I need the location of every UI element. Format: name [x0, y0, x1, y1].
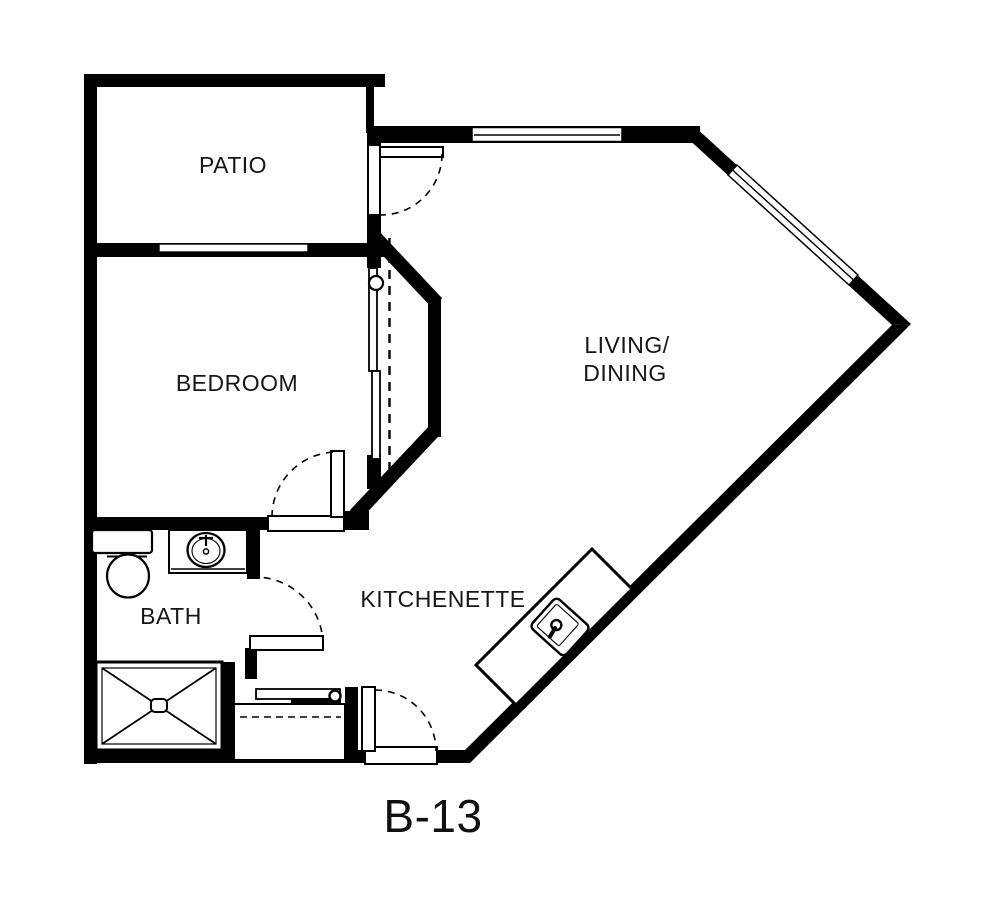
wall-bay-bottom-stub — [367, 455, 381, 489]
unit-label: B-13 — [383, 790, 482, 842]
bedroom-door-leaf — [331, 451, 344, 517]
bedroom-door — [268, 451, 344, 531]
wall-patio-top — [84, 74, 385, 87]
patio-label: PATIO — [199, 152, 267, 178]
floor-plan-drawing: PATIO BEDROOM LIVING/ DINING BATH KITCHE… — [0, 0, 1000, 907]
patio-window — [159, 244, 308, 252]
closet-box — [234, 704, 345, 760]
living-dining-label-line1: LIVING/ — [584, 332, 669, 358]
floor-plan-page: PATIO BEDROOM LIVING/ DINING BATH KITCHE… — [0, 0, 1000, 907]
wall-bath-right-bottom — [245, 648, 257, 679]
kitchenette-island — [476, 549, 632, 705]
wall-bay-vertical — [428, 297, 441, 437]
patio-door-frame — [368, 145, 380, 215]
bath-door-swing-arc — [255, 577, 323, 645]
closet-hanging-rod-icon — [256, 689, 340, 699]
closet-rod-hook — [330, 691, 341, 702]
living-dining-label-line2: DINING — [583, 360, 667, 386]
wall-patio-right-thin — [366, 85, 374, 133]
shower-drain — [151, 699, 167, 712]
toilet-bowl — [107, 555, 149, 598]
patio-door-swing-arc — [381, 154, 442, 215]
bath-door — [250, 577, 323, 650]
wall-closet-right — [345, 687, 358, 763]
living-top-window — [472, 128, 622, 142]
vanity-drain — [203, 549, 208, 554]
bedroom-sliding-doors — [369, 238, 390, 472]
wall-bay-lower-angled — [355, 432, 433, 515]
wall-bedroom-bath — [96, 517, 270, 530]
bedroom-door-threshold — [268, 516, 344, 531]
vanity-sink-icon — [169, 530, 247, 573]
shower-icon — [96, 662, 222, 750]
bath-door-leaf — [250, 636, 323, 650]
toilet-tank — [92, 530, 152, 553]
wall-bay-upper-angled — [374, 236, 437, 303]
sliding-panel-lower — [372, 371, 380, 459]
patio-door-leaf — [380, 147, 443, 157]
wall-bedroom-door-stub — [342, 511, 369, 530]
entry-door-leaf — [362, 687, 375, 751]
patio-door — [368, 145, 443, 215]
sliding-door-pull — [369, 276, 383, 290]
bedroom-label: BEDROOM — [176, 370, 298, 396]
toilet-icon — [92, 530, 152, 598]
closet — [234, 689, 345, 760]
entry-door — [362, 687, 437, 764]
angled-window — [728, 165, 858, 285]
bedroom-door-swing-arc — [272, 452, 337, 517]
entry-door-swing-arc — [375, 690, 436, 751]
wall-bath-right-top — [247, 517, 260, 579]
bath-label: BATH — [140, 603, 202, 629]
kitchenette-label: KITCHENETTE — [360, 586, 525, 612]
